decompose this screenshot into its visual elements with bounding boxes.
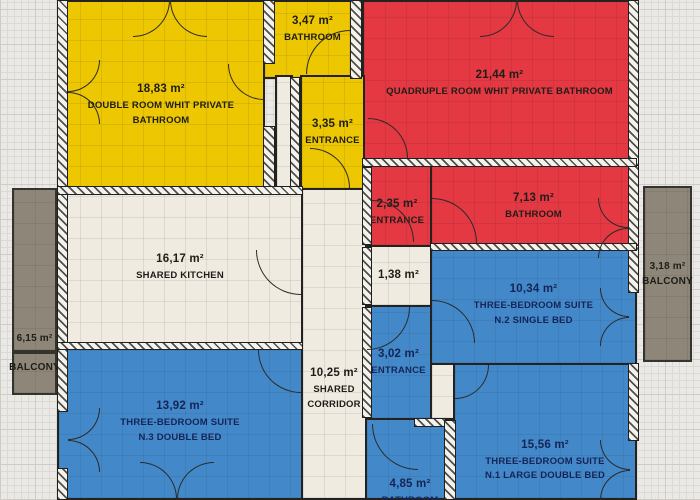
room-name-line2: N.3 DOUBLE BED bbox=[120, 431, 239, 446]
wall-hatched bbox=[57, 346, 68, 412]
room-area: 3,02 m² bbox=[371, 346, 425, 364]
wall-hatched bbox=[628, 363, 639, 441]
room-label: 3,35 m² ENTRANCE bbox=[305, 116, 359, 149]
room-area: 3,18 m² bbox=[642, 259, 693, 275]
wall-hatched bbox=[57, 186, 303, 195]
wall-hatched bbox=[444, 420, 456, 500]
room-name: SHARED KITCHEN bbox=[136, 269, 224, 284]
room-label: 10,34 m² THREE-BEDROOM SUITE N.2 SINGLE … bbox=[474, 281, 593, 328]
room-name: BALCONY bbox=[9, 360, 60, 376]
wall-hatched bbox=[628, 165, 639, 247]
room-label: 4,85 m² BATHROOM bbox=[367, 476, 453, 500]
room-label: 15,56 m² THREE-BEDROOM SUITE N.1 LARGE D… bbox=[485, 437, 605, 484]
room-name: BATHROOM bbox=[505, 208, 562, 223]
room-name: ENTRANCE bbox=[371, 364, 425, 379]
room-name-line2: CORRIDOR bbox=[307, 398, 360, 413]
wall-hatched bbox=[57, 186, 68, 346]
room-name-line2: N.1 LARGE DOUBLE BED bbox=[485, 469, 605, 484]
room-area: 3,47 m² bbox=[284, 13, 341, 31]
room-area: 3,35 m² bbox=[305, 116, 359, 134]
room-name-line2: N.2 SINGLE BED bbox=[474, 314, 593, 329]
balcony-left-lower: BALCONY bbox=[12, 352, 57, 395]
room-name: BALCONY bbox=[642, 274, 693, 290]
room-label: 7,13 m² BATHROOM bbox=[505, 190, 562, 223]
room-area: 10,25 m² bbox=[307, 365, 360, 383]
room-name: THREE-BEDROOM SUITE bbox=[485, 455, 605, 470]
wall-hatched bbox=[362, 158, 637, 167]
room-label: 13,92 m² THREE-BEDROOM SUITE N.3 DOUBLE … bbox=[120, 398, 239, 445]
wall-hatched bbox=[628, 0, 639, 167]
room-name: ENTRANCE bbox=[305, 134, 359, 149]
room-area: 7,13 m² bbox=[505, 190, 562, 208]
room-name: QUADRUPLE ROOM WHIT PRIVATE BATHROOM bbox=[386, 85, 613, 100]
wall-hatched bbox=[263, 0, 275, 64]
wall-hatched bbox=[362, 167, 372, 245]
wall-hatched bbox=[628, 245, 639, 293]
room-name: SHARED bbox=[307, 383, 360, 398]
wall-hatched bbox=[57, 0, 68, 188]
room-shared-corridor: 10,25 m² SHARED CORRIDOR bbox=[301, 188, 367, 500]
wall-hatched bbox=[57, 342, 303, 350]
room-label: 1,38 m² bbox=[378, 267, 419, 285]
room-closet: 1,38 m² bbox=[365, 245, 432, 307]
room-double-bedroom: 18,83 m² DOUBLE ROOM WHIT PRIVATE BATHRO… bbox=[57, 0, 265, 190]
room-area: 21,44 m² bbox=[386, 67, 613, 85]
wall-hatched bbox=[290, 77, 300, 190]
room-area: 16,17 m² bbox=[136, 251, 224, 269]
room-name: THREE-BEDROOM SUITE bbox=[474, 299, 593, 314]
wall-hatched bbox=[57, 468, 68, 500]
room-name: BATHROOM bbox=[367, 494, 453, 500]
room-label: BALCONY bbox=[9, 360, 60, 376]
room-area: 4,85 m² bbox=[367, 476, 453, 494]
room-area: 18,83 m² bbox=[59, 81, 263, 99]
room-area: 10,34 m² bbox=[474, 281, 593, 299]
room-label: 6,15 m² bbox=[17, 331, 53, 347]
room-name: THREE-BEDROOM SUITE bbox=[120, 416, 239, 431]
floor-plan-canvas: 18,83 m² DOUBLE ROOM WHIT PRIVATE BATHRO… bbox=[0, 0, 700, 500]
room-label: 10,25 m² SHARED CORRIDOR bbox=[307, 365, 360, 412]
room-label: 3,18 m² BALCONY bbox=[642, 259, 693, 290]
room-label: 21,44 m² QUADRUPLE ROOM WHIT PRIVATE BAT… bbox=[386, 67, 613, 100]
wall-hatched bbox=[414, 418, 446, 427]
balcony-left-upper: 6,15 m² bbox=[12, 188, 57, 352]
room-area: 6,15 m² bbox=[17, 331, 53, 347]
room-label: 3,02 m² ENTRANCE bbox=[371, 346, 425, 379]
shaft-mid bbox=[430, 363, 455, 420]
room-area: 13,92 m² bbox=[120, 398, 239, 416]
wall-hatched bbox=[350, 0, 362, 79]
room-area: 1,38 m² bbox=[378, 267, 419, 285]
room-area: 15,56 m² bbox=[485, 437, 605, 455]
balcony-right: 3,18 m² BALCONY bbox=[643, 186, 692, 362]
wall-hatched bbox=[362, 247, 372, 305]
room-label: 16,17 m² SHARED KITCHEN bbox=[136, 251, 224, 284]
wall-hatched bbox=[263, 126, 275, 190]
